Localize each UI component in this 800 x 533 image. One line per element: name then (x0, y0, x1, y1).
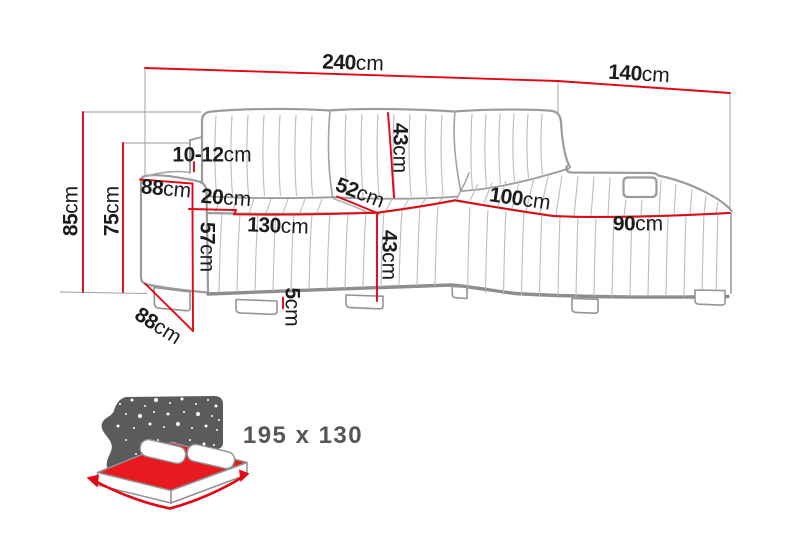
dim-85cm-total-height: 85cm (61, 186, 82, 236)
dim-75cm-height: 75cm (102, 186, 123, 236)
bed-size-label: 195 x 130 (243, 422, 363, 450)
sofa-legs (154, 287, 725, 315)
sleeping-function-icon (87, 396, 250, 509)
armrest-leg (154, 288, 190, 311)
dim-line-57 (193, 210, 194, 332)
dim-57cm-armrest-height: 57cm (197, 222, 218, 272)
dim-5cm-leg-height: 5cm (282, 287, 303, 326)
dim-140cm-chaise-depth: 140cm (608, 62, 671, 87)
front-leg (452, 287, 467, 299)
chaise-leg (695, 290, 725, 305)
sofa-dimension-diagram: 240cm 140cm 85cm 75cm 10-12cm 88cm 20cm … (0, 0, 800, 533)
dim-130cm-seat-width: 130cm (247, 214, 309, 237)
dim-43cm-backrest-height: 43cm (390, 123, 411, 173)
dim-10-12cm-gap: 10-12cm (172, 145, 251, 166)
right-armrest-cushion (624, 178, 657, 198)
upholstery-stripes (215, 114, 718, 297)
chaise-leg (572, 299, 598, 314)
dim-20cm-armrest-width: 20cm (200, 186, 252, 210)
dim-43cm-seat-height: 43cm (379, 230, 400, 280)
front-leg (236, 300, 277, 315)
dim-90cm-chaise-width-front: 90cm (613, 214, 663, 235)
dim-240cm-overall-width: 240cm (322, 52, 384, 75)
dim-88cm-armrest-depth: 88cm (140, 176, 192, 201)
